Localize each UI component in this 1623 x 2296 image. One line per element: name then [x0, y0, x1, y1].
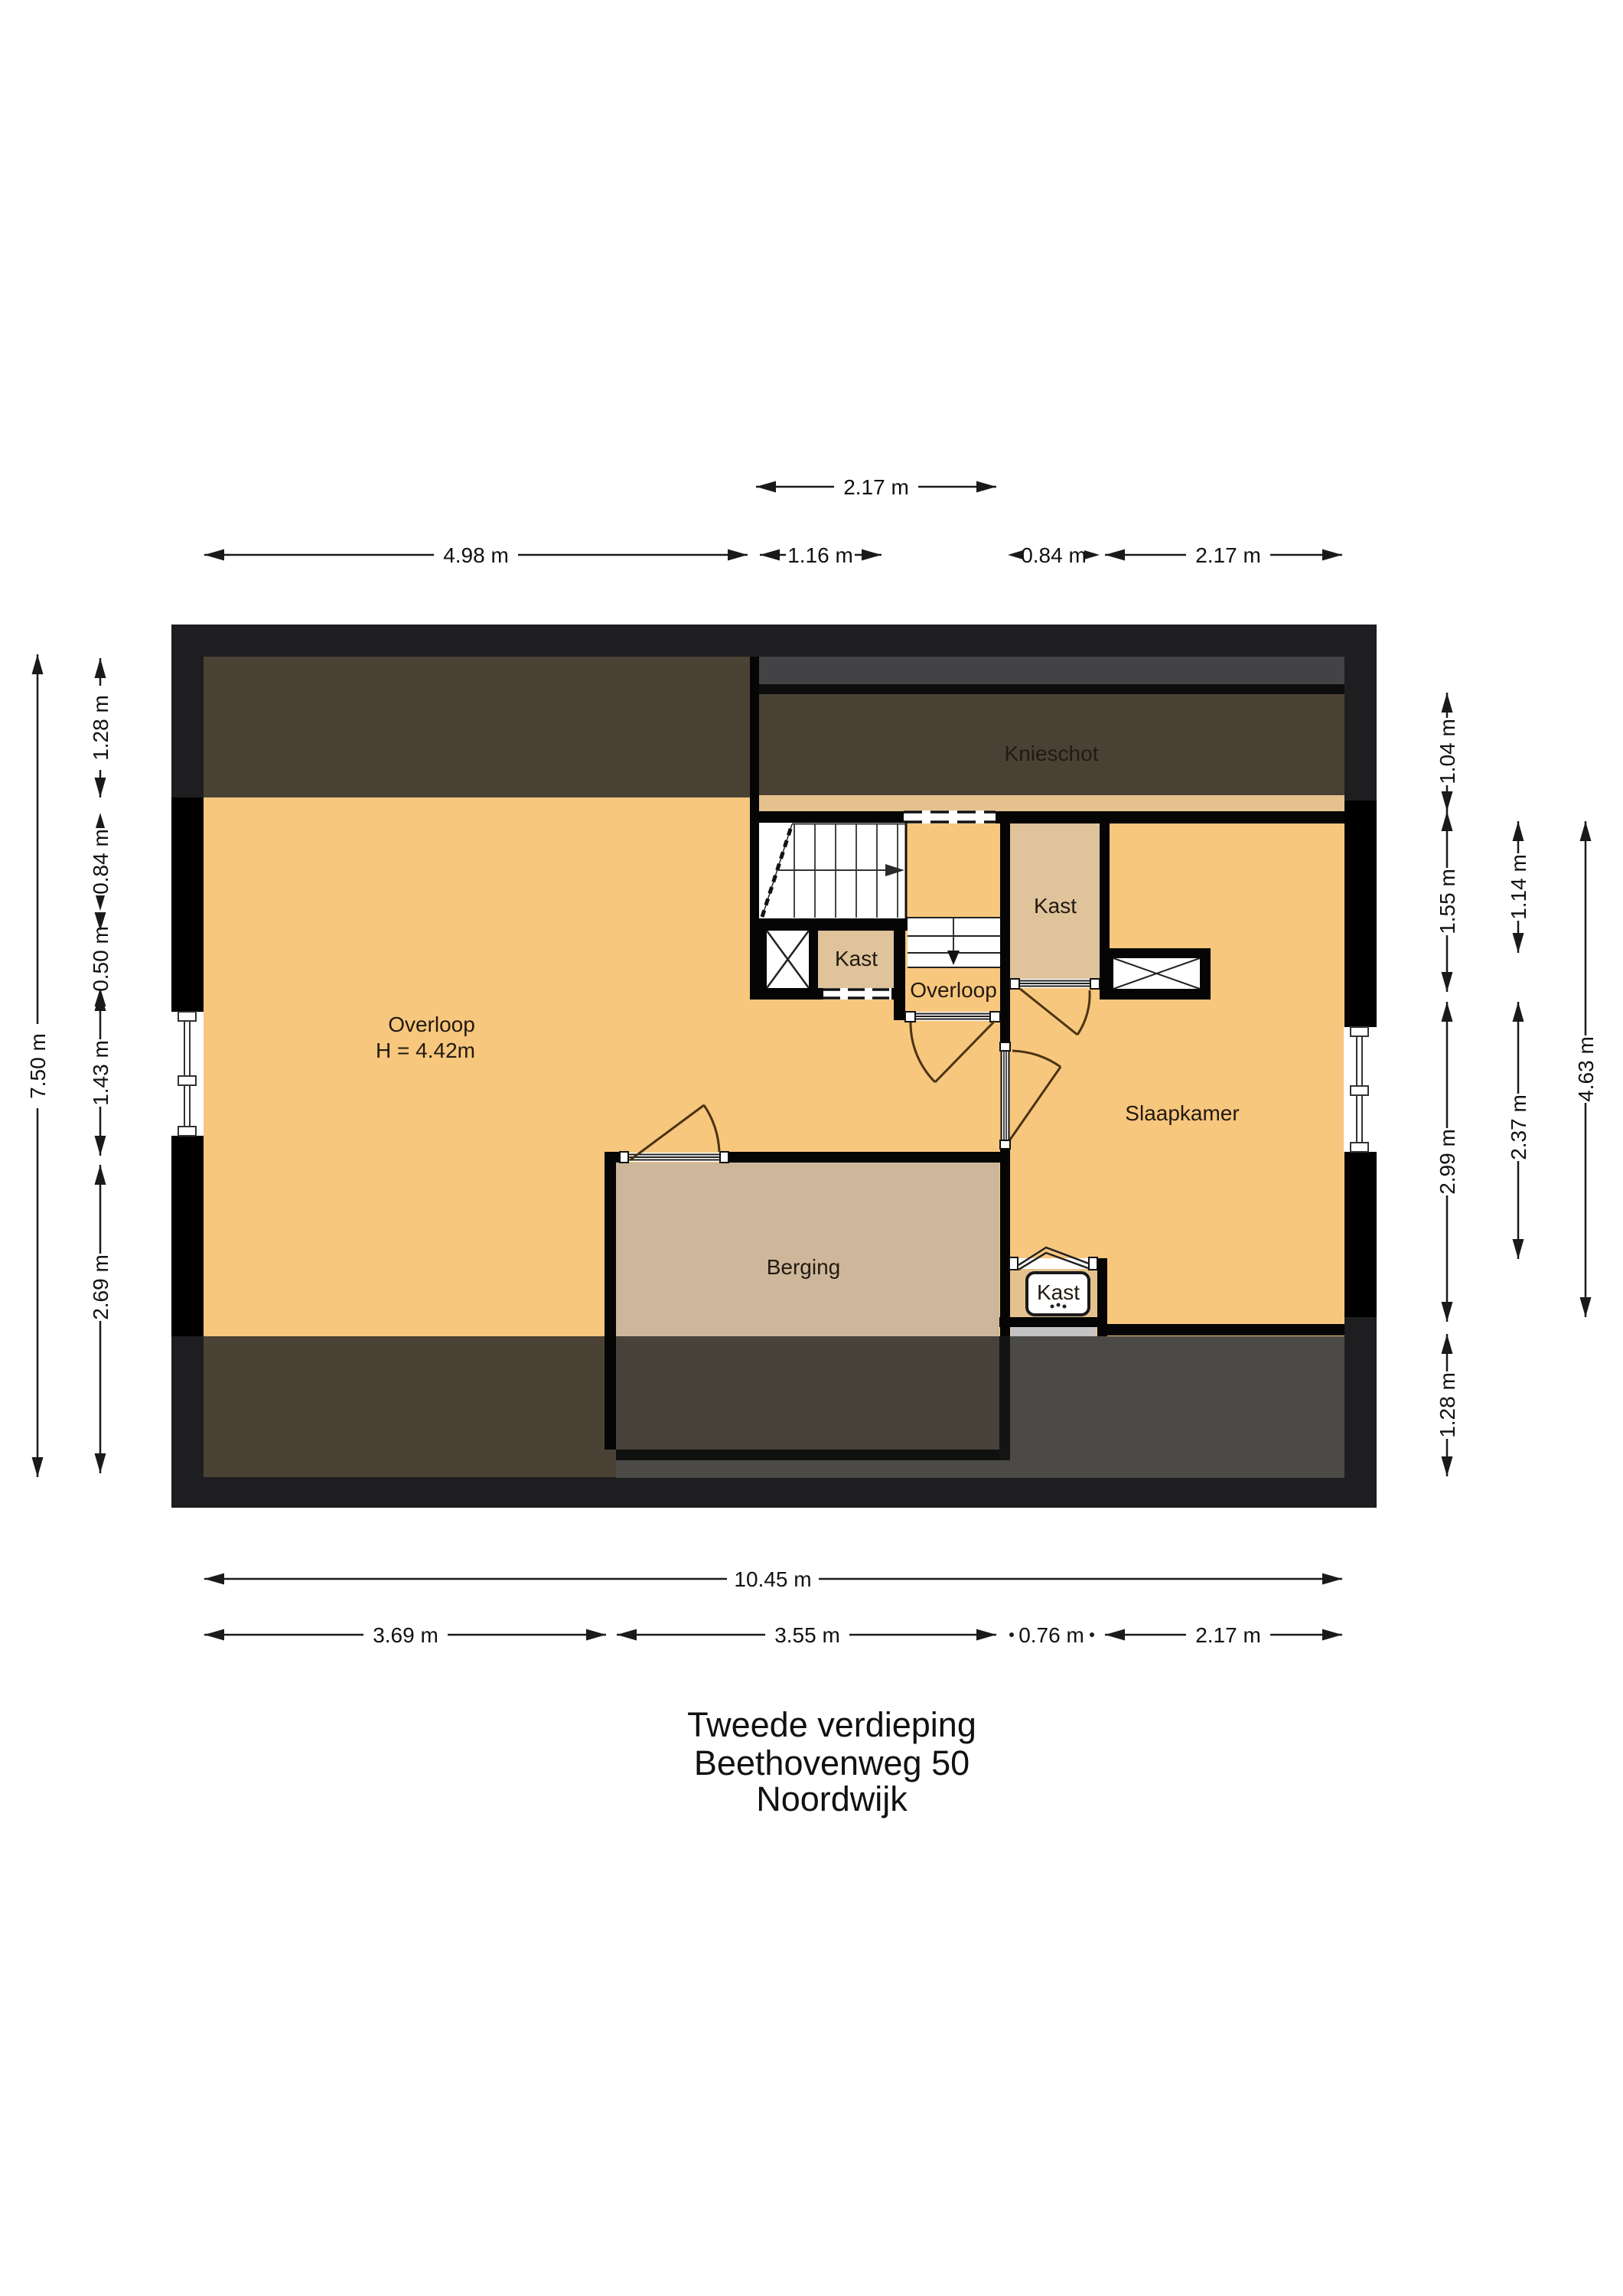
svg-text:Overloop: Overloop [910, 978, 997, 1002]
svg-text:Kast: Kast [1037, 1280, 1080, 1304]
svg-text:Slaapkamer: Slaapkamer [1125, 1101, 1239, 1125]
svg-text:H = 4.42m: H = 4.42m [376, 1039, 475, 1062]
svg-text:2.17 m: 2.17 m [1195, 1623, 1261, 1647]
svg-text:3.55 m: 3.55 m [774, 1623, 840, 1647]
svg-text:Kast: Kast [835, 947, 878, 970]
svg-text:10.45 m: 10.45 m [734, 1567, 811, 1591]
svg-text:1.16 m: 1.16 m [787, 543, 853, 567]
svg-text:Knieschot: Knieschot [1005, 742, 1099, 765]
svg-text:7.50 m: 7.50 m [26, 1033, 50, 1099]
svg-text:Berging: Berging [767, 1255, 841, 1279]
svg-text:Noordwijk: Noordwijk [756, 1779, 908, 1818]
svg-text:2.17 m: 2.17 m [843, 475, 909, 499]
svg-text:Tweede verdieping: Tweede verdieping [687, 1705, 976, 1744]
svg-text:0.84 m: 0.84 m [89, 829, 112, 895]
svg-text:1.14 m: 1.14 m [1507, 854, 1530, 920]
svg-text:1.55 m: 1.55 m [1436, 869, 1459, 934]
svg-text:1.43 m: 1.43 m [89, 1040, 112, 1106]
svg-text:2.17 m: 2.17 m [1195, 543, 1261, 567]
svg-text:1.28 m: 1.28 m [89, 695, 112, 761]
svg-text:0.76 m: 0.76 m [1018, 1623, 1084, 1647]
svg-text:0.50 m: 0.50 m [89, 926, 112, 992]
svg-text:2.69 m: 2.69 m [89, 1254, 112, 1320]
svg-text:Beethovenweg 50: Beethovenweg 50 [694, 1743, 970, 1782]
svg-text:2.37 m: 2.37 m [1507, 1094, 1530, 1160]
svg-text:Kast: Kast [1034, 894, 1077, 918]
svg-text:4.98 m: 4.98 m [443, 543, 509, 567]
svg-text:Overloop: Overloop [388, 1013, 475, 1036]
svg-text:3.69 m: 3.69 m [373, 1623, 438, 1647]
svg-text:0.84 m: 0.84 m [1021, 543, 1087, 567]
svg-text:1.04 m: 1.04 m [1436, 719, 1459, 784]
svg-text:2.99 m: 2.99 m [1436, 1129, 1459, 1195]
svg-text:1.28 m: 1.28 m [1436, 1372, 1459, 1438]
svg-text:4.63 m: 4.63 m [1574, 1036, 1598, 1102]
